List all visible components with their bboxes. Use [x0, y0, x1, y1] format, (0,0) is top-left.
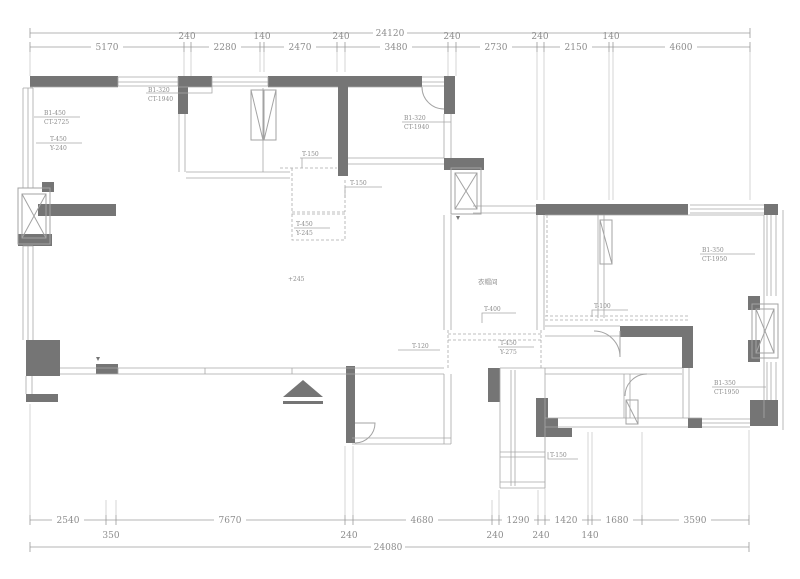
dim-label: 4680	[411, 516, 434, 526]
shaft-x-box-center	[451, 168, 481, 214]
dim-label: 7670	[219, 516, 242, 526]
wardrobe-diagonal	[264, 90, 276, 140]
dim-label: 140	[581, 531, 598, 541]
tag-text: B1-450	[44, 110, 66, 117]
tag-text: T-150	[350, 180, 367, 187]
wall	[268, 76, 340, 87]
windows-layer	[23, 77, 776, 427]
door-arcs	[355, 87, 647, 443]
wardrobe-diagonal	[251, 90, 263, 140]
tag-text: Y-240	[49, 145, 67, 152]
dimension-chain-bottom: 24080 2540 350 7670 240 4680 240 1290 24…	[30, 404, 749, 553]
window	[212, 77, 268, 86]
tag-text: T-400	[484, 306, 501, 313]
tag-text: T-150	[550, 452, 567, 459]
wall	[42, 182, 54, 192]
shaft-x	[756, 309, 774, 353]
window	[23, 88, 33, 188]
dim-label: 240	[486, 531, 503, 541]
level-marker-icon	[96, 357, 100, 361]
tag-text: CT-1940	[148, 96, 173, 103]
tag-text: T-100	[594, 303, 611, 310]
wall	[536, 428, 572, 437]
window	[767, 215, 776, 296]
sill-spec-tag: T-450 Y-240	[36, 136, 82, 152]
wall	[536, 204, 688, 215]
dim-label: 3590	[684, 516, 707, 526]
tag-text: CT-1950	[714, 389, 739, 396]
window	[422, 77, 444, 86]
witness-lines	[30, 404, 749, 515]
wall	[748, 296, 760, 310]
wall	[544, 418, 558, 428]
wardrobe-symbol	[600, 220, 612, 264]
wall	[764, 204, 778, 215]
tag-text: T-150	[302, 151, 319, 158]
door-arc	[355, 423, 375, 443]
dim-label: 3480	[385, 43, 408, 53]
dim-label: 2540	[57, 516, 80, 526]
tag-text: B1-350	[714, 380, 736, 387]
wall	[346, 366, 355, 443]
window-spec-tag: B1-350 CT-1950	[712, 380, 766, 396]
door-arc	[625, 374, 647, 396]
drop-height-tag: T-150	[548, 452, 578, 459]
dim-top-total: 24120	[376, 29, 405, 39]
dim-label: 2730	[485, 43, 508, 53]
wall	[26, 394, 58, 402]
tag-text: CT-1950	[702, 256, 727, 263]
closet-symbol	[626, 400, 638, 424]
wall	[348, 76, 422, 87]
wall	[488, 368, 500, 402]
shaft-x-box-right	[752, 304, 778, 358]
leader-line	[300, 158, 332, 168]
door-arc	[594, 331, 620, 357]
window	[702, 419, 750, 427]
walls-layer	[18, 76, 778, 443]
dim-label: 2150	[565, 43, 588, 53]
dim-label: 2470	[289, 43, 312, 53]
entry-triangle-icon	[283, 380, 323, 397]
drop-height-tag: T-100	[592, 303, 628, 317]
sill-spec-tag: T-450 Y-245	[294, 221, 330, 237]
drop-height-tag: T-150	[300, 151, 332, 168]
dim-label: 240	[531, 32, 548, 42]
tag-text: T-450	[500, 340, 517, 347]
dim-label: 140	[253, 32, 270, 42]
dim-label: 4600	[670, 43, 693, 53]
dim-label: 1680	[606, 516, 629, 526]
tag-text: CT-1940	[404, 124, 429, 131]
leader-line	[345, 187, 382, 198]
dimension-chain-top: 24120 5170 240 2280 140 2470 240 3480 24…	[30, 28, 750, 200]
wall	[30, 76, 118, 87]
witness-lines	[30, 52, 750, 200]
elevation-label: +245	[288, 276, 305, 283]
dim-label: 140	[602, 32, 619, 42]
drop-height-tag: T-400	[482, 306, 516, 323]
wall	[682, 326, 693, 368]
wall	[444, 76, 455, 114]
window	[118, 77, 178, 86]
shaft-x	[455, 173, 477, 209]
dim-label: 1290	[507, 516, 530, 526]
window	[767, 362, 776, 400]
dim-label: 240	[443, 32, 460, 42]
window	[690, 205, 764, 213]
wardrobe-symbol	[251, 90, 276, 140]
dim-bottom-total: 24080	[374, 543, 403, 553]
wall	[26, 340, 60, 376]
dim-label: 2280	[214, 43, 237, 53]
tag-text: CT-2725	[44, 119, 69, 126]
dim-label: 5170	[96, 43, 119, 53]
drop-height-tag: T-120	[398, 343, 440, 350]
drop-height-tag: T-150	[345, 180, 382, 198]
floor-plan-svg: 24120 5170 240 2280 140 2470 240 3480 24…	[0, 0, 800, 579]
leader-line	[482, 313, 516, 323]
wall	[178, 76, 188, 114]
dim-label: 350	[102, 531, 119, 541]
wall	[688, 418, 702, 428]
wall	[620, 326, 690, 337]
tag-text: B1-320	[404, 115, 426, 122]
tag-text: Y-245	[295, 230, 313, 237]
room-label-cloakroom: 衣帽间	[478, 277, 498, 286]
floor-plan-canvas: 24120 5170 240 2280 140 2470 240 3480 24…	[0, 0, 800, 579]
window	[23, 246, 33, 340]
annotation-tags: B1-320 CT-1940 B1-450 CT-2725 T-450 Y-24…	[34, 86, 766, 459]
dim-label: 240	[332, 32, 349, 42]
dim-label: 240	[340, 531, 357, 541]
wall	[748, 340, 760, 362]
balcony-window-band	[60, 368, 444, 374]
entry-marker	[283, 380, 323, 404]
dashed-opening-lines	[280, 168, 688, 368]
window-spec-tag: B1-350 CT-1950	[700, 247, 755, 263]
wardrobe-diagonal	[600, 220, 612, 264]
sill-spec-tag: T-450 Y-275	[498, 340, 534, 356]
entry-marker-bar	[283, 401, 323, 404]
partition-lines	[26, 87, 783, 488]
tag-text: T-450	[50, 136, 67, 143]
wall	[338, 76, 348, 176]
window-spec-tag: B1-450 CT-2725	[34, 110, 80, 126]
dim-label: 240	[532, 531, 549, 541]
tag-text: B1-350	[702, 247, 724, 254]
closet-diagonal	[626, 400, 638, 424]
door-arc	[422, 87, 444, 109]
dim-label: 240	[178, 32, 195, 42]
tag-text: B1-320	[148, 87, 170, 94]
tag-text: T-450	[296, 221, 313, 228]
tag-text: T-120	[412, 343, 429, 350]
dim-label: 1420	[555, 516, 578, 526]
wall	[96, 364, 118, 374]
tag-text: Y-275	[499, 349, 517, 356]
level-marker-icon	[456, 216, 460, 220]
